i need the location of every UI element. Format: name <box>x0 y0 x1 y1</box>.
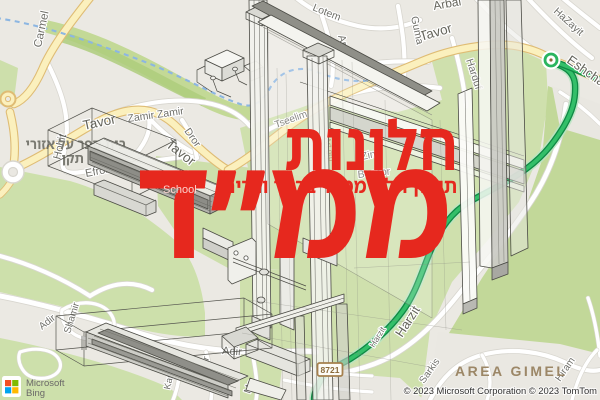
svg-text:AREA GIMEL: AREA GIMEL <box>455 363 567 379</box>
svg-text:© 2023 Microsoft Corporation ©: © 2023 Microsoft Corporation © 2023 TomT… <box>404 385 598 396</box>
svg-text:8721: 8721 <box>321 365 340 375</box>
svg-text:School: School <box>163 184 197 196</box>
svg-text:Bing: Bing <box>26 388 45 399</box>
